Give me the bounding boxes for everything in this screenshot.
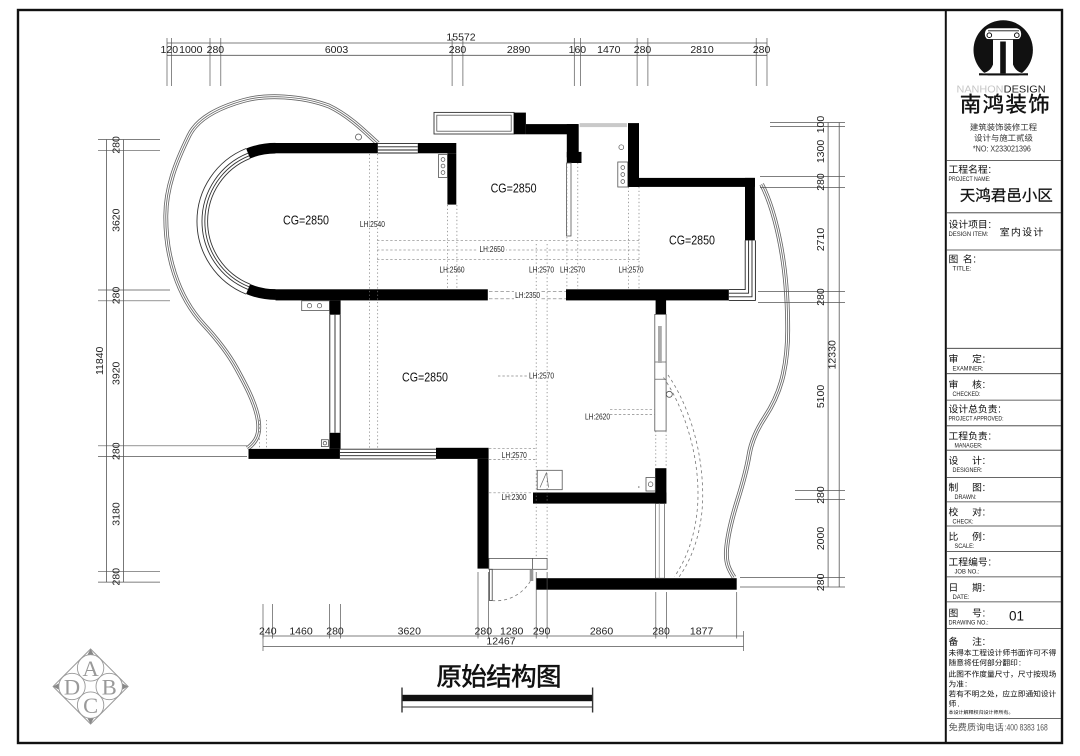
svg-text:240: 240 — [259, 625, 277, 637]
svg-text::: : — [965, 679, 967, 689]
svg-text:CG=2850: CG=2850 — [491, 181, 537, 196]
svg-text:LH:2570: LH:2570 — [560, 264, 585, 274]
svg-text:DESIGNER:: DESIGNER: — [953, 467, 983, 474]
svg-text:2710: 2710 — [815, 228, 827, 252]
svg-text:B: B — [102, 675, 117, 700]
svg-text:12467: 12467 — [486, 636, 515, 648]
svg-text::: : — [1019, 657, 1021, 667]
svg-text::: : — [988, 431, 991, 443]
svg-text:CG=2850: CG=2850 — [283, 213, 329, 228]
svg-text:PROJECT NAME:: PROJECT NAME: — [949, 176, 991, 183]
svg-text:C: C — [83, 693, 98, 718]
svg-text:LH:2570: LH:2570 — [502, 450, 527, 460]
svg-text::: : — [988, 164, 991, 176]
svg-text::: : — [982, 379, 985, 391]
svg-text:160: 160 — [569, 44, 587, 56]
svg-text:280: 280 — [111, 442, 123, 460]
svg-text:3620: 3620 — [398, 625, 422, 637]
svg-text::: : — [982, 608, 985, 620]
svg-text:SCALE:: SCALE: — [955, 543, 975, 550]
svg-text:280: 280 — [634, 44, 652, 56]
svg-text:EXAMINER:: EXAMINER: — [953, 366, 984, 373]
svg-text:1877: 1877 — [690, 625, 714, 637]
svg-text::: : — [998, 404, 1001, 416]
svg-text:3620: 3620 — [111, 208, 123, 232]
svg-text:LH:2560: LH:2560 — [440, 264, 465, 274]
svg-text:12330: 12330 — [826, 340, 838, 369]
svg-text:280: 280 — [111, 136, 123, 154]
svg-text:280: 280 — [111, 286, 123, 304]
svg-text::: : — [988, 557, 991, 569]
svg-text:CHECKED:: CHECKED: — [953, 391, 981, 398]
svg-text::: : — [973, 254, 976, 266]
svg-text:2810: 2810 — [690, 44, 714, 56]
svg-text::: : — [982, 507, 985, 519]
svg-text:DESIGN ITEM:: DESIGN ITEM: — [949, 231, 989, 238]
svg-text:.: . — [957, 699, 959, 709]
svg-text:D: D — [64, 675, 80, 700]
svg-text:11840: 11840 — [94, 346, 106, 375]
svg-text::: : — [982, 582, 985, 594]
svg-text::: : — [982, 636, 985, 648]
svg-text:CG=2850: CG=2850 — [669, 232, 715, 247]
svg-text::: : — [982, 482, 985, 494]
svg-text:1000: 1000 — [179, 44, 203, 56]
svg-text:01: 01 — [1009, 609, 1024, 624]
svg-text:5100: 5100 — [815, 385, 827, 409]
svg-text:15572: 15572 — [446, 32, 475, 44]
svg-text:PROJECT APPROVED:: PROJECT APPROVED: — [949, 416, 1004, 423]
svg-text:2890: 2890 — [507, 44, 531, 56]
svg-text:280: 280 — [111, 568, 123, 586]
svg-text:LH:2650: LH:2650 — [480, 244, 505, 254]
svg-text:3180: 3180 — [111, 502, 123, 526]
svg-text:280: 280 — [815, 573, 827, 591]
svg-text::400 8383 168: :400 8383 168 — [1005, 723, 1048, 733]
svg-text:LH:2300: LH:2300 — [502, 492, 527, 502]
svg-text:MANAGER:: MANAGER: — [955, 443, 983, 450]
svg-text:1300: 1300 — [815, 140, 827, 164]
svg-text::: : — [982, 531, 985, 543]
svg-text:CG=2850: CG=2850 — [402, 369, 448, 384]
svg-text:280: 280 — [753, 44, 771, 56]
svg-text:LH:2570: LH:2570 — [529, 371, 554, 381]
svg-text:CHECK:: CHECK: — [953, 519, 974, 526]
svg-text:280: 280 — [815, 288, 827, 306]
svg-text::: : — [988, 219, 991, 231]
svg-text:*NO: X233021396: *NO: X233021396 — [973, 144, 1031, 154]
svg-text::: : — [982, 455, 985, 467]
svg-text:LH:2540: LH:2540 — [360, 219, 385, 229]
svg-text:280: 280 — [652, 625, 670, 637]
svg-text:LH:2570: LH:2570 — [619, 264, 644, 274]
svg-text:280: 280 — [326, 625, 344, 637]
svg-text:280: 280 — [815, 173, 827, 191]
svg-text:LH:2570: LH:2570 — [529, 264, 554, 274]
svg-text:DRAWN:: DRAWN: — [955, 494, 977, 501]
svg-text:TITLE:: TITLE: — [953, 266, 972, 273]
svg-text:LH:2620: LH:2620 — [585, 411, 610, 421]
svg-text:2860: 2860 — [590, 625, 614, 637]
svg-text:JOB NO.:: JOB NO.: — [955, 569, 980, 576]
svg-text:6003: 6003 — [325, 44, 349, 56]
svg-text:280: 280 — [207, 44, 225, 56]
svg-text:290: 290 — [533, 625, 551, 637]
svg-text:3920: 3920 — [111, 361, 123, 385]
svg-text:DRAWING NO.:: DRAWING NO.: — [949, 620, 989, 627]
svg-text::: : — [982, 353, 985, 365]
svg-text:2000: 2000 — [815, 527, 827, 551]
svg-text:DATE:: DATE: — [953, 594, 970, 601]
svg-text:NANHON: NANHON — [957, 84, 1004, 96]
svg-text:120: 120 — [161, 44, 179, 56]
svg-text:1460: 1460 — [289, 625, 313, 637]
svg-text:LH:2350: LH:2350 — [515, 290, 540, 300]
svg-text:280: 280 — [815, 486, 827, 504]
svg-text:280: 280 — [449, 44, 467, 56]
svg-text:A: A — [82, 656, 99, 681]
svg-text:1470: 1470 — [597, 44, 621, 56]
svg-text:100: 100 — [815, 116, 827, 134]
